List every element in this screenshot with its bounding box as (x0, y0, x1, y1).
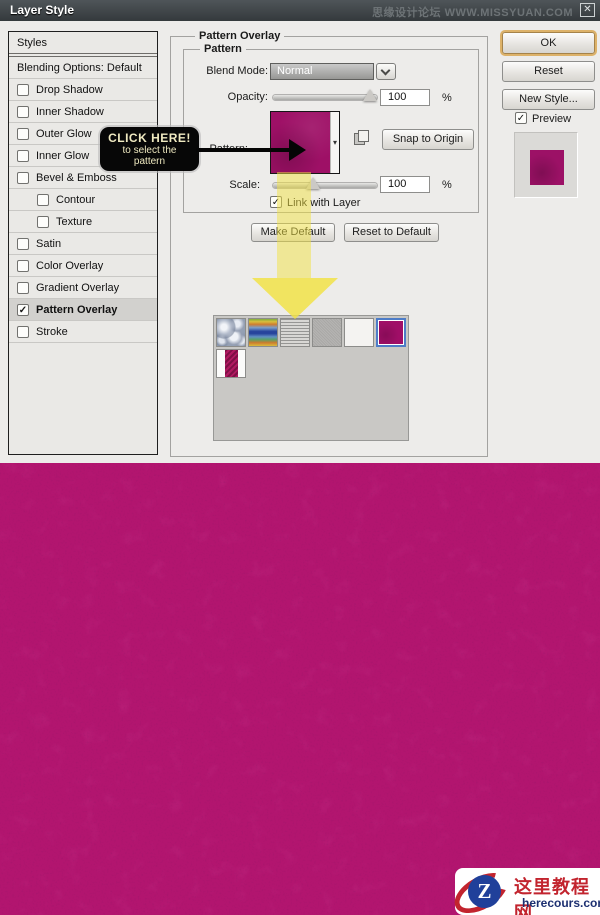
sidebar-item-label: Inner Shadow (36, 106, 104, 118)
black-arrow-line (196, 148, 290, 152)
dialog-titlebar[interactable]: Layer Style 思缘设计论坛 WWW.MISSYUAN.COM ✕ (0, 0, 600, 21)
pattern-group: Pattern Blend Mode: Normal Opacity: 100 … (183, 49, 479, 213)
tooltip-line2: pattern (100, 156, 199, 167)
new-pattern-icon-front (358, 130, 369, 142)
sidebar-item-label: Contour (56, 194, 95, 206)
scale-input[interactable]: 100 (380, 176, 430, 193)
sidebar-item-blending-options[interactable]: Blending Options: Default (9, 57, 157, 79)
pattern-picker-panel (213, 315, 409, 441)
snap-to-origin-button[interactable]: Snap to Origin (382, 129, 474, 150)
pattern-thumbnail-white[interactable] (344, 318, 374, 347)
new-pattern-icon[interactable] (354, 130, 370, 146)
inner-shadow-checkbox[interactable] (17, 106, 29, 118)
pattern-overlay-checkbox[interactable]: ✓ (17, 304, 29, 316)
preview-checkbox[interactable]: ✓ (515, 112, 527, 124)
outer-glow-checkbox[interactable] (17, 128, 29, 140)
sidebar-item-gradient-overlay[interactable]: Gradient Overlay (9, 277, 157, 299)
sidebar-item-label: Drop Shadow (36, 84, 103, 96)
sidebar-item-label: Gradient Overlay (36, 282, 119, 294)
bevel-emboss-checkbox[interactable] (17, 172, 29, 184)
sidebar-item-label: Blending Options: Default (17, 62, 142, 74)
scale-unit: % (442, 179, 452, 191)
tooltip-line1: to select the (100, 145, 199, 156)
logo-z-icon: Z (468, 875, 501, 908)
pattern-thumbnail-graynoise[interactable] (312, 318, 342, 347)
sidebar-item-label: Outer Glow (36, 128, 92, 140)
texture-checkbox[interactable] (37, 216, 49, 228)
gradient-overlay-checkbox[interactable] (17, 282, 29, 294)
blend-mode-dropdown-button[interactable] (376, 63, 396, 80)
satin-checkbox[interactable] (17, 238, 29, 250)
pattern-overlay-group-title: Pattern Overlay (195, 30, 284, 43)
sidebar-item-label: Pattern Overlay (36, 304, 117, 316)
sidebar-item-label: Color Overlay (36, 260, 103, 272)
opacity-label: Opacity: (184, 91, 268, 103)
sidebar-item-satin[interactable]: Satin (9, 233, 157, 255)
site-logo: Z 这里教程网 herecours.com (455, 868, 600, 915)
yellow-arrow-head (252, 278, 338, 319)
dialog-title: Layer Style (10, 3, 74, 17)
opacity-input[interactable]: 100 (380, 89, 430, 106)
opacity-unit: % (442, 92, 452, 104)
pattern-swatch-dropdown-icon[interactable]: ▾ (330, 112, 339, 173)
stroke-checkbox[interactable] (17, 326, 29, 338)
pattern-thumbnail-magenta[interactable] (376, 318, 406, 347)
pattern-group-title: Pattern (200, 43, 246, 56)
styles-sidebar: Styles Blending Options: DefaultDrop Sha… (8, 31, 158, 455)
preview-swatch (530, 150, 564, 185)
preview-panel (514, 132, 578, 198)
sidebar-item-stroke[interactable]: Stroke (9, 321, 157, 343)
yellow-arrow-stem (277, 172, 311, 278)
reset-button[interactable]: Reset (502, 61, 595, 82)
pattern-thumbnail-herringbone[interactable] (216, 349, 246, 378)
sidebar-item-pattern-overlay[interactable]: ✓Pattern Overlay (9, 299, 157, 321)
sidebar-item-label: Stroke (36, 326, 68, 338)
drop-shadow-checkbox[interactable] (17, 84, 29, 96)
sidebar-item-label: Bevel & Emboss (36, 172, 117, 184)
black-arrow-head (289, 139, 306, 161)
chevron-down-icon (381, 66, 391, 76)
pattern-background (0, 462, 600, 915)
pattern-thumbnail-bubbles[interactable] (216, 318, 246, 347)
sidebar-item-color-overlay[interactable]: Color Overlay (9, 255, 157, 277)
contour-checkbox[interactable] (37, 194, 49, 206)
screenshot-stage: Layer Style 思缘设计论坛 WWW.MISSYUAN.COM ✕ St… (0, 0, 600, 915)
new-style-button[interactable]: New Style... (502, 89, 595, 110)
sidebar-item-texture[interactable]: Texture (9, 211, 157, 233)
reset-to-default-button[interactable]: Reset to Default (344, 223, 439, 242)
blend-mode-label: Blend Mode: (184, 65, 268, 77)
ok-button[interactable]: OK (502, 32, 595, 54)
opacity-slider-thumb[interactable] (363, 89, 377, 101)
sidebar-header-styles[interactable]: Styles (9, 32, 157, 54)
close-icon[interactable]: ✕ (580, 3, 595, 17)
sidebar-item-drop-shadow[interactable]: Drop Shadow (9, 79, 157, 101)
color-overlay-checkbox[interactable] (17, 260, 29, 272)
click-here-tooltip: CLICK HERE! to select the pattern (100, 127, 199, 171)
sidebar-item-label: Satin (36, 238, 61, 250)
opacity-slider[interactable] (273, 95, 377, 100)
pattern-thumbnail-newsprint[interactable] (280, 318, 310, 347)
inner-glow-checkbox[interactable] (17, 150, 29, 162)
logo-domain-text: herecours.com (522, 896, 600, 910)
sidebar-item-label: Inner Glow (36, 150, 89, 162)
watermark-text: 思缘设计论坛 WWW.MISSYUAN.COM (372, 4, 573, 20)
blend-mode-select[interactable]: Normal (270, 63, 374, 80)
pattern-thumbnail-tiedye[interactable] (248, 318, 278, 347)
preview-label: Preview (532, 113, 571, 125)
scale-label: Scale: (184, 179, 260, 191)
sidebar-item-label: Texture (56, 216, 92, 228)
tooltip-title: CLICK HERE! (100, 131, 199, 145)
sidebar-item-contour[interactable]: Contour (9, 189, 157, 211)
texture-noise (0, 462, 600, 915)
sidebar-item-inner-shadow[interactable]: Inner Shadow (9, 101, 157, 123)
sidebar-item-list: Blending Options: DefaultDrop ShadowInne… (9, 57, 157, 343)
